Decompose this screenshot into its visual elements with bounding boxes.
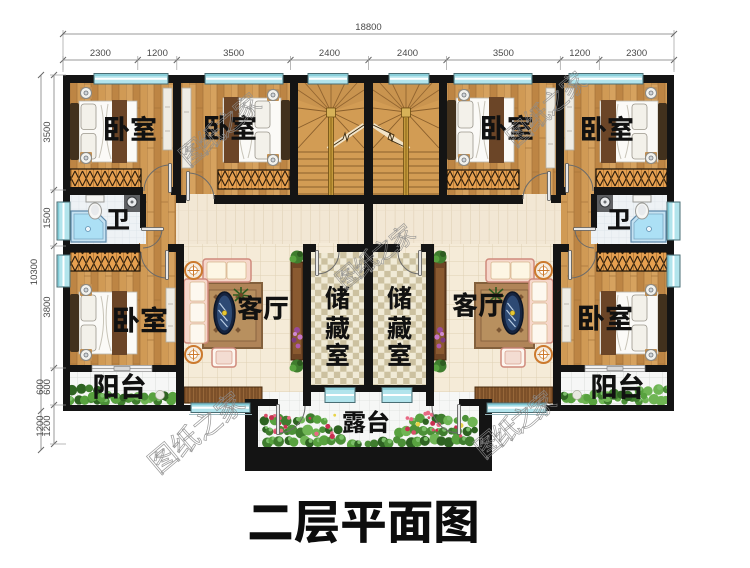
svg-text:1200: 1200 bbox=[569, 48, 590, 59]
svg-text:600: 600 bbox=[35, 379, 46, 395]
svg-text:2400: 2400 bbox=[397, 48, 418, 59]
svg-text:1200: 1200 bbox=[147, 48, 168, 59]
svg-text:3800: 3800 bbox=[42, 296, 53, 317]
svg-text:2400: 2400 bbox=[319, 48, 340, 59]
svg-text:18800: 18800 bbox=[355, 22, 381, 33]
svg-text:2300: 2300 bbox=[626, 48, 647, 59]
svg-text:1200: 1200 bbox=[35, 415, 46, 436]
svg-text:10300: 10300 bbox=[29, 259, 40, 285]
svg-text:3500: 3500 bbox=[223, 48, 244, 59]
svg-text:1500: 1500 bbox=[42, 207, 53, 228]
svg-text:2300: 2300 bbox=[90, 48, 111, 59]
svg-text:3500: 3500 bbox=[493, 48, 514, 59]
svg-text:3500: 3500 bbox=[42, 121, 53, 142]
